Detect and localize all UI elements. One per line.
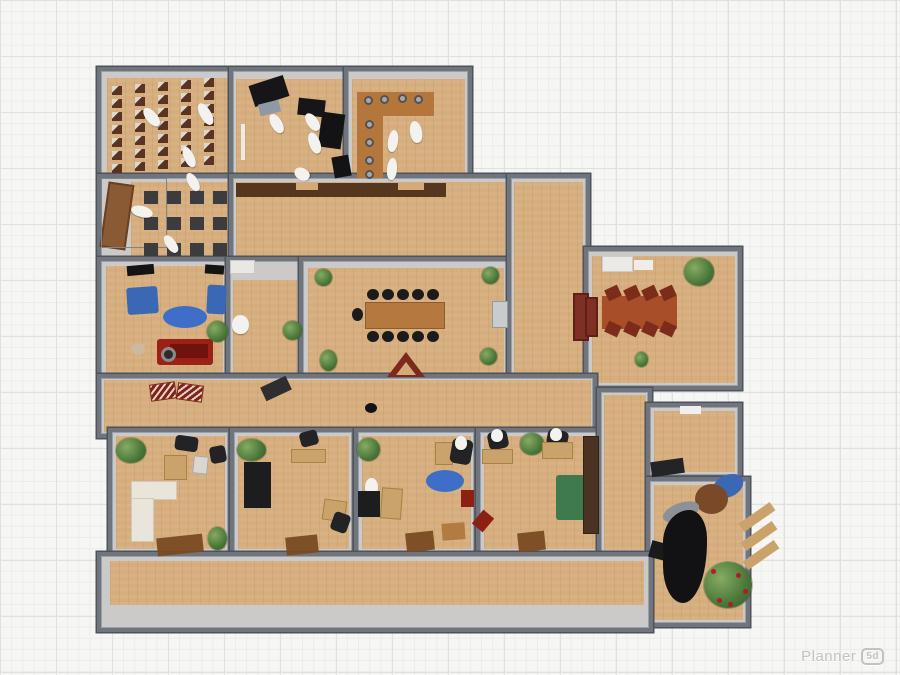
plant[interactable] <box>482 267 499 284</box>
board-leaning[interactable] <box>192 455 209 474</box>
office-chair-black[interactable] <box>209 445 228 465</box>
stool-knob[interactable] <box>380 95 389 104</box>
classroom-chair-grid-cell <box>204 91 214 100</box>
classroom-chair-grid-cell <box>204 78 214 87</box>
watermark: Planner 5d <box>801 648 884 665</box>
person-figure[interactable] <box>455 436 467 450</box>
rug-blue-oval[interactable] <box>426 470 464 492</box>
pouf[interactable] <box>131 343 145 355</box>
whiteboard[interactable] <box>492 301 508 328</box>
desk-tan[interactable] <box>482 449 513 464</box>
table-grid-cell <box>167 217 181 230</box>
classroom-chair-grid-cell <box>181 80 191 89</box>
sofa-white-side[interactable] <box>131 498 154 542</box>
door-strip <box>241 124 245 160</box>
table-grid-cell <box>213 217 227 230</box>
classroom-chair-grid-cell <box>181 132 191 141</box>
stool-knob[interactable] <box>365 120 374 129</box>
classroom-chair-grid-cell <box>158 160 168 169</box>
stool-knob[interactable] <box>365 170 374 179</box>
watermark-brand: Planner <box>801 648 856 665</box>
classroom-chair-grid-cell <box>112 138 122 147</box>
bench-striped[interactable] <box>149 381 177 401</box>
stool-knob[interactable] <box>365 156 374 165</box>
watermark-badge-5d-icon: 5d <box>861 648 884 665</box>
bench-striped[interactable] <box>176 382 204 402</box>
classroom-chair-grid-cell <box>181 106 191 115</box>
classroom-chair-grid-cell <box>158 82 168 91</box>
flower-dot <box>728 602 733 607</box>
flower-dot <box>736 573 741 578</box>
conference-chair[interactable] <box>382 289 394 300</box>
table-grid-cell <box>167 191 181 204</box>
classroom-chair-grid-cell <box>158 95 168 104</box>
plant[interactable] <box>635 352 648 367</box>
rug-door[interactable] <box>405 531 435 553</box>
desk-tan[interactable] <box>291 449 326 463</box>
table-grid-cell <box>213 243 227 256</box>
classroom-chair-grid-cell <box>135 162 145 171</box>
conference-chair[interactable] <box>397 331 409 342</box>
chair-round-brown[interactable] <box>695 484 728 514</box>
cabinet-white[interactable] <box>230 260 255 274</box>
classroom-chair-grid-cell <box>204 143 214 152</box>
desk-tan[interactable] <box>164 455 187 480</box>
classroom-chair-grid-cell <box>135 136 145 145</box>
classroom-chair-grid-cell <box>135 97 145 106</box>
classroom-chair-grid-cell <box>112 164 122 173</box>
plant[interactable] <box>237 439 266 461</box>
classroom-chair-grid-cell <box>181 93 191 102</box>
design-canvas[interactable]: Planner 5d <box>0 0 900 675</box>
trash-bin[interactable] <box>365 403 377 413</box>
classroom-chair-grid-cell <box>112 151 122 160</box>
chest-red[interactable] <box>461 490 474 507</box>
conference-chair[interactable] <box>367 289 379 300</box>
classroom-chair-grid-cell <box>181 119 191 128</box>
corridor-bottom-floor <box>110 561 644 605</box>
corridor-bottom[interactable] <box>97 552 653 632</box>
rug-door[interactable] <box>285 534 319 555</box>
classroom-chair-grid-cell <box>158 134 168 143</box>
conference-chair[interactable] <box>412 331 424 342</box>
desk-black[interactable] <box>358 491 380 517</box>
person-figure[interactable] <box>491 429 503 442</box>
classroom-chair-grid-cell <box>135 123 145 132</box>
table-grid-cell <box>190 217 204 230</box>
table-grid-cell <box>190 191 204 204</box>
plant[interactable] <box>283 321 302 340</box>
plant[interactable] <box>320 350 337 371</box>
conference-chair[interactable] <box>367 331 379 342</box>
stool-knob[interactable] <box>365 138 374 147</box>
plant[interactable] <box>357 438 380 461</box>
sofa-green[interactable] <box>556 475 586 520</box>
sofa-blue[interactable] <box>126 286 159 315</box>
office-chair-black[interactable] <box>174 434 199 452</box>
conference-chair[interactable] <box>382 331 394 342</box>
door-red[interactable] <box>585 297 598 337</box>
classroom-chair-grid-cell <box>112 86 122 95</box>
floorplan-render[interactable] <box>0 0 900 675</box>
classroom-chair-grid-cell <box>112 125 122 134</box>
stool-knob[interactable] <box>414 95 423 104</box>
classroom-chair-grid-cell <box>112 112 122 121</box>
rug-door[interactable] <box>517 531 546 553</box>
conference-chair[interactable] <box>427 331 439 342</box>
classroom-chair-grid-cell <box>158 147 168 156</box>
plant[interactable] <box>315 269 332 286</box>
plant[interactable] <box>480 348 497 365</box>
box-brown[interactable] <box>441 522 465 541</box>
box-white[interactable] <box>634 260 653 270</box>
plant[interactable] <box>116 438 146 463</box>
counter-gap <box>398 183 424 190</box>
foosball-wheel[interactable] <box>161 347 176 362</box>
window-notch <box>680 406 701 414</box>
classroom-chair-grid-cell <box>204 130 214 139</box>
stool-knob[interactable] <box>398 94 407 103</box>
conference-chair[interactable] <box>397 289 409 300</box>
corridor-hall-right-floor <box>604 395 646 550</box>
table-grid-cell <box>213 191 227 204</box>
tv-console-black[interactable] <box>205 264 225 274</box>
desk-tan[interactable] <box>380 487 403 519</box>
classroom-chair-grid-cell <box>135 84 145 93</box>
table-grid-cell <box>144 191 158 204</box>
chair-white[interactable] <box>232 315 249 334</box>
panel-black[interactable] <box>331 155 351 179</box>
table-grid-cell <box>190 243 204 256</box>
flower-dot <box>711 569 716 574</box>
counter-gap <box>296 183 318 190</box>
classroom-chair-grid-cell <box>112 99 122 108</box>
conference-table[interactable] <box>365 302 445 329</box>
flower-dot <box>743 589 748 594</box>
stool-knob[interactable] <box>364 96 373 105</box>
conference-chair[interactable] <box>427 289 439 300</box>
plant[interactable] <box>208 527 227 550</box>
table-black[interactable] <box>244 462 271 508</box>
table-grid-cell <box>144 217 158 230</box>
rug-blue-oval[interactable] <box>163 306 207 328</box>
cabinet-white[interactable] <box>602 256 633 272</box>
plant[interactable] <box>520 433 544 455</box>
sofa-blue[interactable] <box>206 285 226 315</box>
plant[interactable] <box>684 258 714 286</box>
wardrobe-dark[interactable] <box>583 436 599 534</box>
conference-chair[interactable] <box>352 308 363 321</box>
table-grid[interactable] <box>144 191 236 269</box>
corridor-hall-right[interactable] <box>597 388 652 556</box>
plant[interactable] <box>207 321 228 342</box>
classroom-chair-grid[interactable] <box>112 86 227 177</box>
classroom-chair-grid-cell <box>204 156 214 165</box>
classroom-chair-grid-cell <box>135 149 145 158</box>
conference-chair[interactable] <box>412 289 424 300</box>
desk-tan[interactable] <box>542 442 573 459</box>
table-grid-cell <box>144 243 158 256</box>
panel-black[interactable] <box>318 112 346 150</box>
flower-dot <box>717 598 722 603</box>
classroom-chair-grid-cell <box>158 108 168 117</box>
person-figure[interactable] <box>550 428 562 441</box>
